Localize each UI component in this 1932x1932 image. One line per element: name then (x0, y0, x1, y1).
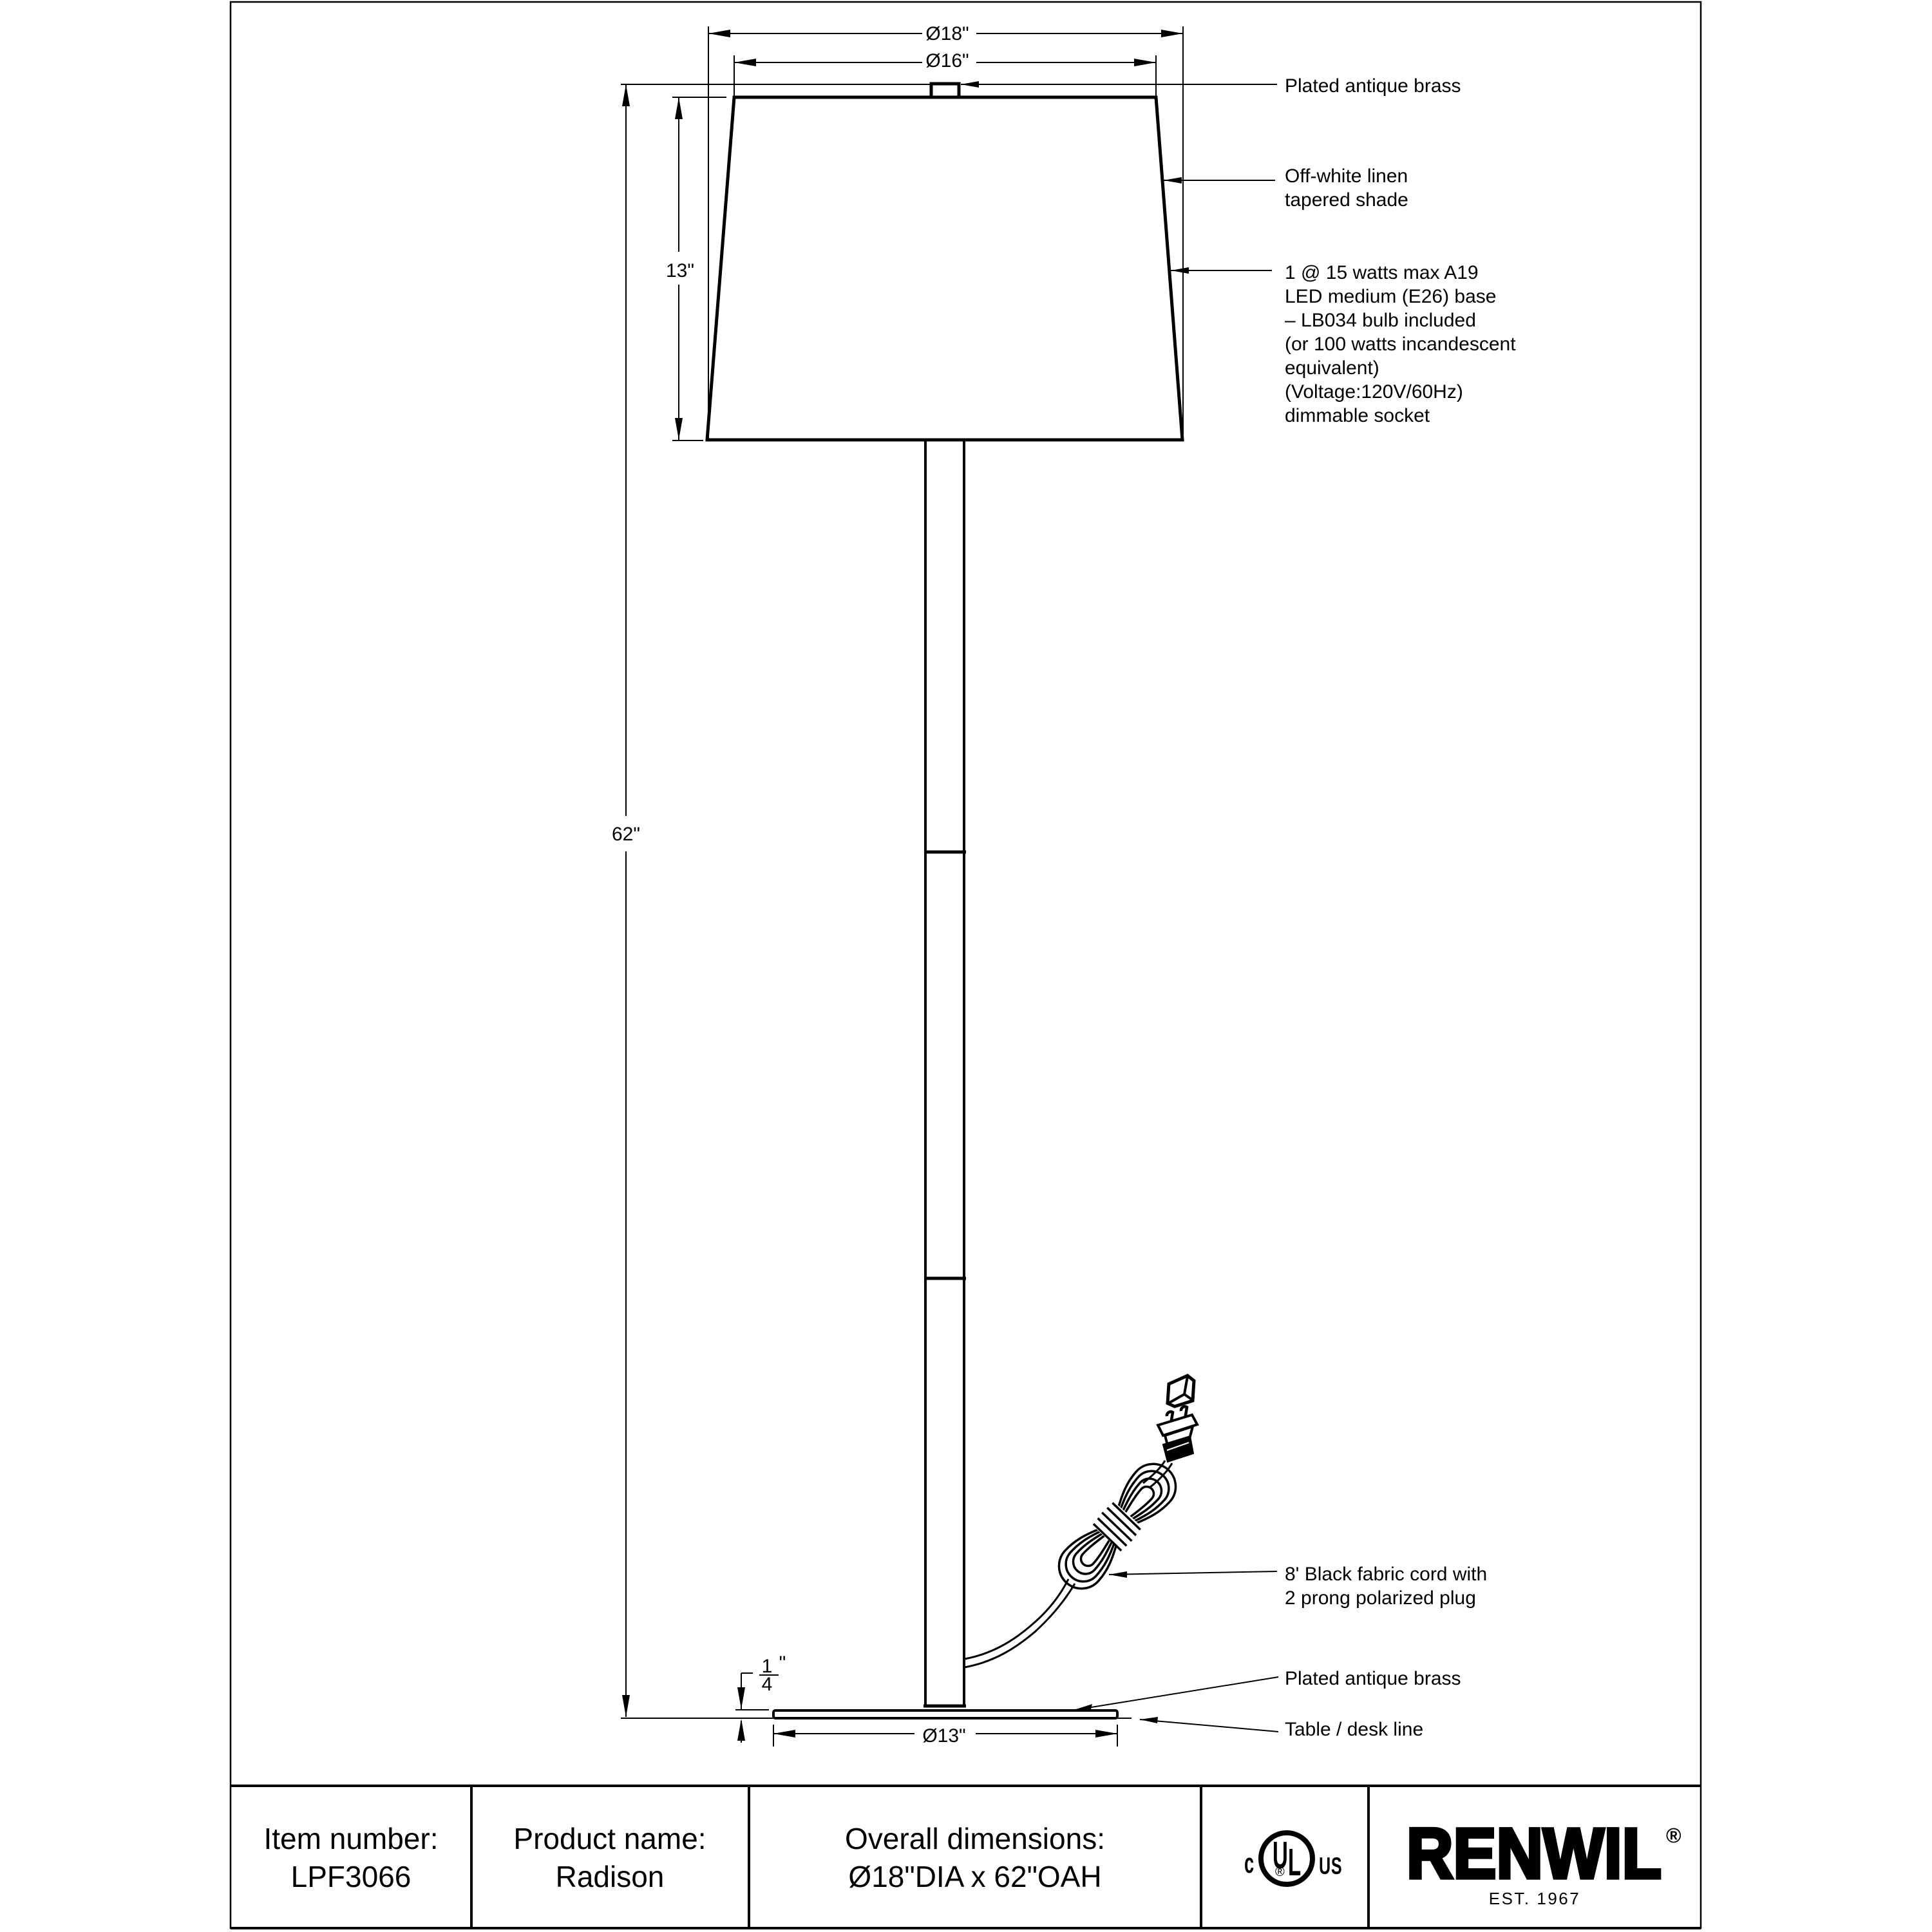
svg-text:Plated antique brass: Plated antique brass (1285, 75, 1461, 97)
svg-text:LPF3066: LPF3066 (291, 1860, 412, 1893)
svg-text:c: c (1244, 1847, 1254, 1879)
svg-text:(or 100 watts incandescent: (or 100 watts incandescent (1285, 334, 1516, 355)
svg-text:®: ® (1275, 1865, 1285, 1879)
svg-text:EST. 1967: EST. 1967 (1489, 1889, 1580, 1908)
svg-text:Overall dimensions:: Overall dimensions: (845, 1822, 1105, 1855)
svg-text:": " (779, 1653, 786, 1674)
svg-text:equivalent): equivalent) (1285, 357, 1379, 379)
svg-text:Off-white linen: Off-white linen (1285, 166, 1408, 187)
svg-text:Radison: Radison (556, 1860, 665, 1893)
svg-text:Ø18": Ø18" (925, 23, 969, 44)
svg-text:Plated antique brass: Plated antique brass (1285, 1668, 1461, 1689)
svg-text:(Voltage:120V/60Hz): (Voltage:120V/60Hz) (1285, 381, 1463, 402)
svg-text:Ø16": Ø16" (925, 50, 969, 71)
svg-text:62": 62" (612, 824, 640, 845)
svg-text:8' Black fabric cord with: 8' Black fabric cord with (1285, 1564, 1487, 1585)
svg-text:1 @ 15 watts max A19: 1 @ 15 watts max A19 (1285, 262, 1479, 283)
svg-text:L: L (1288, 1842, 1301, 1884)
svg-text:4: 4 (762, 1674, 773, 1695)
svg-text:13": 13" (666, 260, 694, 281)
svg-text:LED medium (E26) base: LED medium (E26) base (1285, 286, 1496, 307)
svg-text:Product name:: Product name: (513, 1822, 706, 1855)
svg-text:2 prong polarized plug: 2 prong polarized plug (1285, 1587, 1476, 1609)
svg-text:– LB034 bulb included: – LB034 bulb included (1285, 310, 1476, 331)
svg-text:Table / desk line: Table / desk line (1285, 1719, 1423, 1740)
svg-text:®: ® (1666, 1824, 1681, 1847)
svg-text:tapered shade: tapered shade (1285, 189, 1408, 211)
svg-text:Ø13": Ø13" (922, 1725, 965, 1747)
svg-text:US: US (1319, 1852, 1342, 1879)
svg-text:Ø18"DIA x 62"OAH: Ø18"DIA x 62"OAH (848, 1860, 1101, 1893)
svg-text:Item number:: Item number: (264, 1822, 439, 1855)
svg-text:RENWIL: RENWIL (1406, 1814, 1662, 1893)
svg-text:dimmable socket: dimmable socket (1285, 405, 1430, 426)
